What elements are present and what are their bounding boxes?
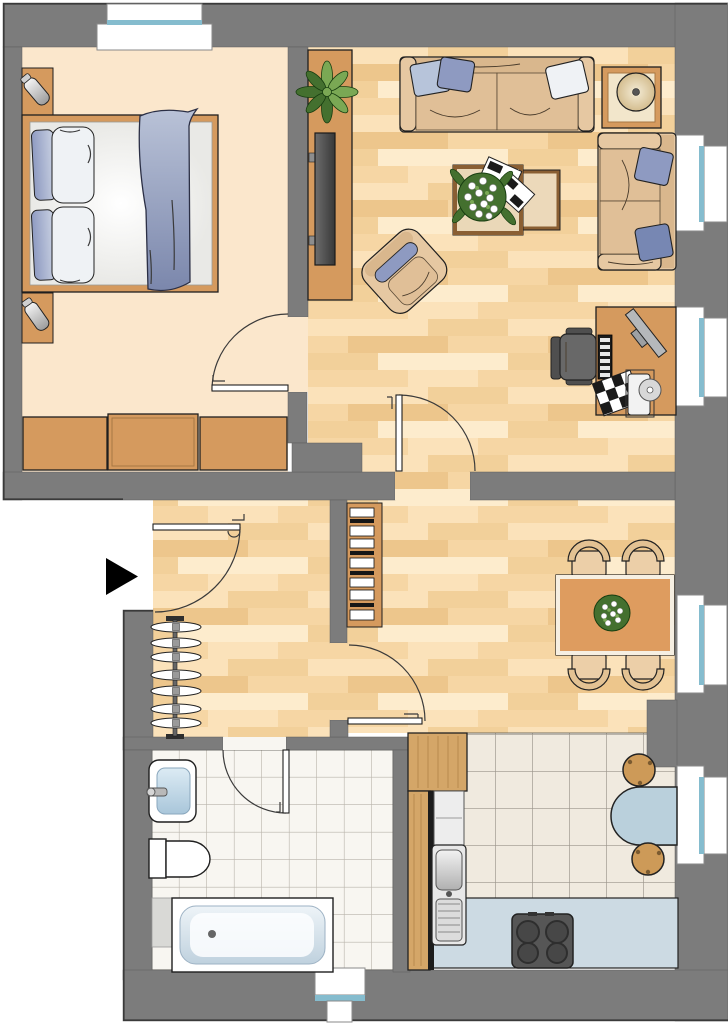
wall-table bbox=[611, 787, 677, 845]
floor-plan bbox=[0, 0, 728, 1024]
keyboard-icon bbox=[598, 335, 612, 379]
stove-icon bbox=[512, 912, 573, 968]
bathtub-icon bbox=[152, 898, 333, 972]
pillow-pair-bottom bbox=[31, 207, 94, 283]
double-bed bbox=[22, 109, 218, 292]
stool bbox=[632, 843, 664, 875]
three-seat-sofa bbox=[400, 57, 594, 132]
pillow-pair-top bbox=[31, 127, 94, 203]
flower-centerpiece-icon bbox=[594, 595, 630, 631]
sofa-pillow bbox=[437, 57, 475, 93]
dining-chair bbox=[622, 651, 664, 690]
dining-chair bbox=[568, 540, 610, 579]
sofa-pillow bbox=[634, 147, 674, 186]
kitchen-window bbox=[677, 766, 727, 864]
stool bbox=[623, 754, 655, 786]
dining-chair bbox=[622, 540, 664, 579]
bedroom-window bbox=[97, 4, 212, 50]
wardrobe bbox=[23, 414, 287, 470]
floor-plan-drawing bbox=[0, 0, 728, 1024]
side-table-with-lamp bbox=[602, 67, 661, 128]
shelf-unit bbox=[347, 503, 382, 627]
sofa-pillow bbox=[634, 223, 673, 261]
two-seat-sofa bbox=[598, 133, 676, 270]
blanket bbox=[139, 109, 197, 290]
office-chair bbox=[551, 328, 596, 385]
dining-table bbox=[556, 575, 674, 655]
living-window-upper bbox=[676, 135, 727, 231]
toilet-icon bbox=[149, 839, 210, 878]
dining-window bbox=[677, 595, 727, 693]
sink-icon bbox=[432, 845, 466, 945]
living-window-lower bbox=[676, 307, 727, 406]
dining-chair bbox=[568, 651, 610, 690]
entrance-arrow-icon bbox=[106, 558, 138, 595]
washbasin-icon bbox=[147, 760, 196, 822]
